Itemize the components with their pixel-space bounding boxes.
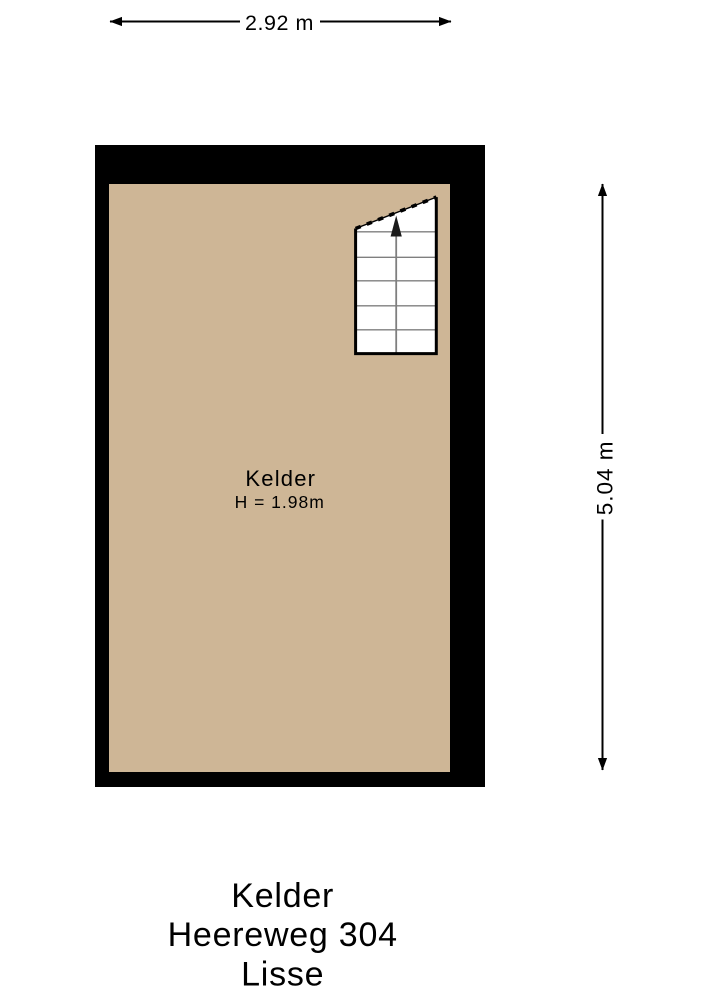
svg-text:5.04 m: 5.04 m (592, 441, 617, 516)
svg-text:2.92 m: 2.92 m (245, 11, 314, 35)
svg-text:Heereweg 304: Heereweg 304 (168, 916, 398, 954)
svg-text:Lisse: Lisse (241, 955, 324, 993)
svg-text:H = 1.98m: H = 1.98m (235, 492, 325, 512)
svg-text:Kelder: Kelder (231, 877, 334, 915)
svg-text:Kelder: Kelder (245, 466, 316, 491)
